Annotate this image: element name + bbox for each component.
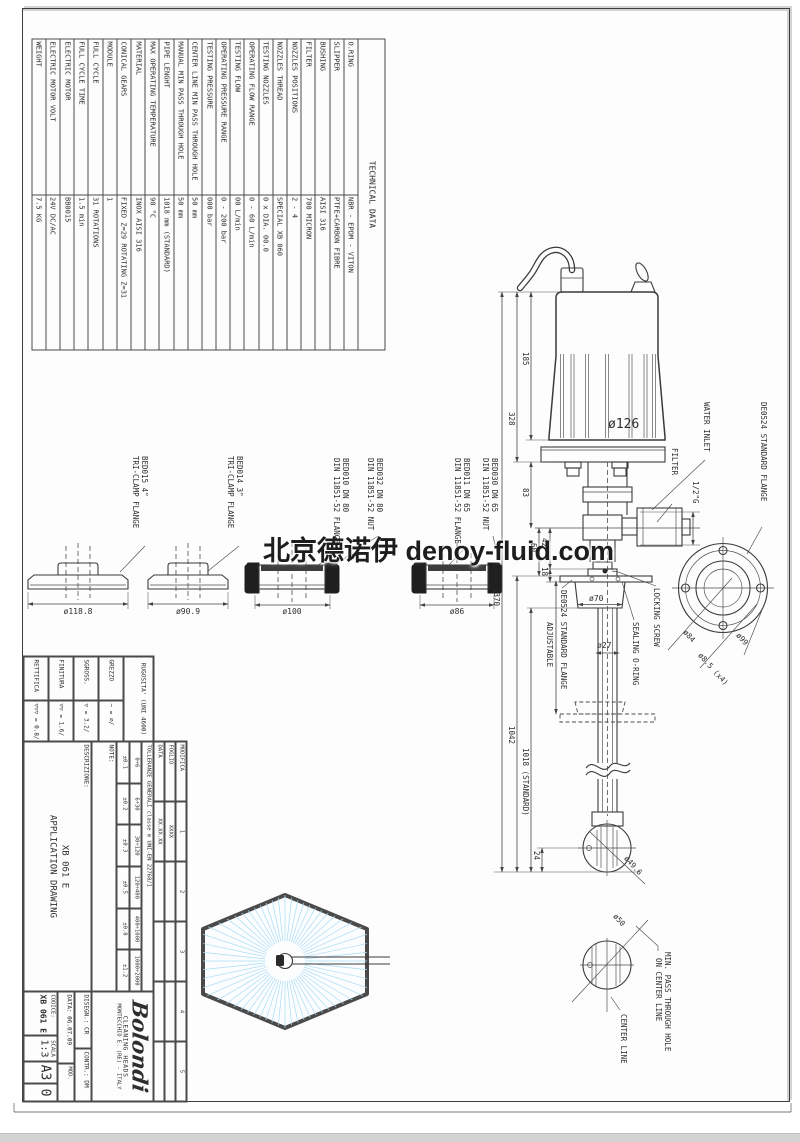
tech-row-value: 90 °C: [145, 194, 159, 350]
roughness-row: RETTIFICA▽▽▽ = 0.8/: [23, 656, 48, 741]
tech-table-row: FULL CYCLE31 ROTATIONS: [88, 39, 102, 350]
tech-row-value: 7.5 KG: [31, 194, 45, 350]
tech-table-row: FILTER700 MICRON: [301, 39, 315, 350]
modifica-cell: XX.XX.XX: [153, 801, 164, 861]
triclamp-flange-3in-view: [148, 543, 239, 609]
triclamp-3in-diameter: ø90.9: [168, 607, 208, 616]
tech-row-label: FULL CYCLE: [88, 39, 102, 195]
technical-data-table: TECHNICAL DATA O.RINGNBR - EPDM - VITONS…: [31, 38, 385, 350]
dim-dia126: ø126: [608, 418, 639, 432]
dim-83: 83: [521, 488, 530, 497]
dim-1018-standard: 1018 (STANDARD): [521, 748, 530, 816]
tech-table-row: SLIPPERPTFE+CARBON FIBRE: [329, 39, 343, 350]
tech-row-label: ELECTRIC MOTOR VOLT: [45, 39, 59, 195]
modifica-cell: [153, 921, 164, 981]
tech-row-label: ELECTRIC MOTOR: [60, 39, 74, 195]
tolerance-cell: ±0.3: [116, 824, 129, 866]
modifica-cell: [153, 981, 164, 1041]
mod-value: 0: [23, 1083, 57, 1101]
tech-row-label: SLIPPER: [329, 39, 343, 195]
contr-field: CONTR.: DM: [74, 1048, 91, 1101]
tech-row-value: NBR - EPDM - VITON: [343, 194, 357, 350]
tech-row-label: FILTER: [301, 39, 315, 195]
tech-table-row: ELECTRIC MOTOR VOLT24V DC/AC: [45, 39, 59, 350]
tech-row-value: 00 L/min: [230, 194, 244, 350]
roughness-symbol: ~ = ∅/: [98, 700, 123, 741]
water-inlet-label: WATER INLET: [702, 402, 711, 452]
triclamp-flange-4in-view: [28, 543, 145, 609]
dim-1370: 1370: [492, 588, 501, 606]
modifica-cell: 2: [175, 861, 186, 921]
tech-table-row: WEIGHT7.5 KG: [31, 39, 45, 350]
scala-field: SCALA 1:3: [23, 1035, 57, 1061]
roughness-block: RUGOSITA' (UNI 4600) GREZZO~ = ∅/SGROSS.…: [22, 655, 154, 742]
tech-row-value: 1.5 min: [74, 194, 88, 350]
modifica-cell: DATA: [153, 741, 164, 801]
dim-18: 18: [540, 567, 549, 576]
tech-row-label: NOZZLES POSITIONS: [287, 39, 301, 195]
modifica-cell: [153, 861, 164, 921]
modifica-row: MODIFICA12345: [175, 741, 186, 1101]
tech-row-label: FULL CYCLE TIME: [74, 39, 88, 195]
tolerance-cell: ±0.5: [116, 866, 129, 908]
din-dn65-diameter: ø86: [437, 607, 477, 616]
tolerance-cell: 1000÷2000: [129, 949, 141, 991]
roughness-header: RUGOSITA' (UNI 4600): [123, 656, 153, 741]
roughness-symbol: ▽ = 3.2/: [73, 700, 98, 741]
tech-row-value: 0 - 60 L/min: [244, 194, 258, 350]
tolerance-cell: ±0.1: [116, 741, 129, 783]
modifica-cell: MODIFICA: [175, 741, 186, 801]
adjustable-label: ADJUSTABLE: [545, 622, 554, 667]
note-field: NOTE:: [91, 741, 116, 991]
tech-row-label: PIPE LENGHT: [159, 39, 173, 195]
watermark-text: 北京德诺伊 denoy-fluid.com: [263, 529, 614, 568]
bottom-bar: [0, 1133, 800, 1142]
codice-value: XB 061 E: [39, 994, 46, 1032]
codice-label: CODICE:: [49, 994, 55, 1032]
roughness-label: FINITURA: [48, 656, 73, 700]
min-pass-label-line2: ON CENTER LINE: [654, 958, 663, 1021]
dim-dia70: ø70: [589, 594, 603, 603]
tech-row-label: MANUAL MIN PASS THROUGH HOLE: [173, 39, 187, 195]
tech-table-row: O.RINGNBR - EPDM - VITON: [343, 39, 357, 350]
modifica-row: FOGLIOXXXX: [164, 741, 175, 1101]
tolerance-cell: 6÷30: [129, 783, 141, 825]
modifica-row: DATAXX.XX.XX: [153, 741, 164, 1101]
tech-row-value: 50 mm: [187, 194, 201, 350]
tech-table-row: PIPE LENGHT1018 mm (STANDARD): [159, 39, 173, 350]
tech-row-label: TESTING PRESSURE: [201, 39, 215, 195]
tech-table-row: OPERATING PRESSURE RANGE0 - 200 bar: [216, 39, 230, 350]
tech-table-row: CONICAL GEARSFIXED Z=29 ROTATING Z=31: [116, 39, 130, 350]
tech-row-value: 2 - 4: [287, 194, 301, 350]
dim-185: 185: [521, 352, 530, 366]
tech-row-value: FIXED Z=29 ROTATING Z=31: [116, 194, 130, 350]
roughness-symbol: ▽▽ = 1.6/: [48, 700, 73, 741]
dim-42: 42: [540, 538, 549, 547]
tech-row-value: 50 mm: [173, 194, 187, 350]
tech-row-label: O.RING: [343, 39, 357, 195]
tech-row-label: MATERIAL: [131, 39, 145, 195]
tech-row-label: MODULE: [102, 39, 116, 195]
din-dn65-nut-code-label: BED030 DN 65: [490, 458, 499, 512]
tech-table-row: TESTING FLOW00 L/min: [230, 39, 244, 350]
tech-row-value: 1: [102, 194, 116, 350]
company-box: Bolondi CLEANING HEADS MONTECCHIO E. (RE…: [91, 991, 153, 1101]
modifica-cell: [164, 1041, 175, 1101]
tech-table-row: BUSHINGAISI 316: [315, 39, 329, 350]
tech-row-label: WEIGHT: [31, 39, 45, 195]
descrizione-title: APPLICATION DRAWING: [46, 744, 58, 988]
sheet-shadow: [14, 1103, 791, 1112]
triclamp-4in-diameter: ø118.8: [58, 607, 98, 616]
tech-row-value: INOX AISI 316: [131, 194, 145, 350]
dim-inlet-thread: 1/2"G: [691, 481, 700, 504]
tech-table-row: CENTER LINE MIN PASS THROUGH HOLE50 mm: [187, 39, 201, 350]
locking-screw-label: LOCKING SCREW: [652, 588, 661, 647]
tech-row-value: 24V DC/AC: [45, 194, 59, 350]
tech-row-value: 0 - 200 bar: [216, 194, 230, 350]
descrizione-label: DESCRIZIONE:: [82, 744, 89, 787]
modifica-cell: 4: [175, 981, 186, 1041]
roughness-row: GREZZO~ = ∅/: [98, 656, 123, 741]
drawing-sheet: TECHNICAL DATA O.RINGNBR - EPDM - VITONS…: [0, 0, 800, 1142]
modifica-cell: FOGLIO: [164, 741, 175, 801]
tech-table-row: TESTING PRESSURE000 bar: [201, 39, 215, 350]
tolerance-cell: ±0.8: [116, 908, 129, 950]
modifica-cell: 1: [175, 801, 186, 861]
triclamp-4in-code-label: BED015 4": [140, 456, 149, 497]
tech-table-row: MAX OPERATING TEMPERATURE90 °C: [145, 39, 159, 350]
codice-field: CODICE: XB 061 E: [23, 991, 57, 1035]
tech-table-row: MANUAL MIN PASS THROUGH HOLE50 mm: [173, 39, 187, 350]
sealing-oring-label: SEALING O-RING: [631, 622, 640, 685]
filter-label: FILTER: [670, 448, 679, 475]
triclamp-4in-type-label: TRI-CLAMP FLANGE: [131, 456, 140, 528]
tech-row-value: 1018 mm (STANDARD): [159, 194, 173, 350]
tech-table-row: ELECTRIC MOTORBB0015: [60, 39, 74, 350]
spray-pattern: [187, 863, 390, 1059]
roughness-label: GREZZO: [98, 656, 123, 700]
tech-row-value: AISI 316: [315, 194, 329, 350]
tech-row-label: CONICAL GEARS: [116, 39, 130, 195]
modifica-cell: [164, 861, 175, 921]
format-field: A3: [23, 1061, 57, 1083]
tech-row-value: 0 x DIA. 00.0: [258, 194, 272, 350]
tech-table-row: OPERATING FLOW RANGE0 - 60 L/min: [244, 39, 258, 350]
tech-row-label: BUSHING: [315, 39, 329, 195]
disegn-field: DISEGN.: CR: [74, 991, 91, 1048]
modifica-cell: [164, 921, 175, 981]
standard-flange-label-left: DE0524 STANDARD FLANGE: [559, 590, 568, 689]
company-logo: Bolondi: [128, 992, 150, 1099]
tech-table-row: FULL CYCLE TIME1.5 min: [74, 39, 88, 350]
title-block: MODIFICA12345FOGLIOXXXXDATAXX.XX.XX TOLL…: [22, 740, 187, 1102]
company-address: MONTECCHIO E. (RE) - ITALY: [115, 994, 121, 1098]
tech-row-label: OPERATING PRESSURE RANGE: [216, 39, 230, 195]
tech-row-value: SPECIAL XB 060: [272, 194, 286, 350]
tech-row-value: PTFE+CARBON FIBRE: [329, 194, 343, 350]
tolerances-header: TOLLERANZE GENERALI classe m UNI-EN 2276…: [141, 741, 153, 991]
tolerance-cell: 30÷120: [129, 824, 141, 866]
tech-row-label: MAX OPERATING TEMPERATURE: [145, 39, 159, 195]
dim-328: 328: [507, 412, 516, 426]
dim-60: 60: [529, 543, 538, 552]
tech-row-value: 700 MICRON: [301, 194, 315, 350]
triclamp-3in-code-label: BED014 3": [235, 456, 244, 497]
tech-row-value: 000 bar: [201, 194, 215, 350]
dim-1042: 1042: [507, 726, 516, 744]
roughness-label: RETTIFICA: [23, 656, 48, 700]
descrizione-field: DESCRIZIONE: XB 061 E APPLICATION DRAWIN…: [23, 741, 91, 991]
tech-row-label: CENTER LINE MIN PASS THROUGH HOLE: [187, 39, 201, 195]
din-dn65-flange-type-label: DIN 11851-52 FLANGE: [453, 458, 462, 544]
mod-label: MOD.: [57, 1063, 74, 1101]
modifica-cell: 3: [175, 921, 186, 981]
tolerance-cell: 120÷400: [129, 866, 141, 908]
min-pass-label-line1: MIN. PASS THROUGH HOLE: [663, 952, 672, 1051]
tolerance-cell: ±0.2: [116, 783, 129, 825]
tech-table-row: TESTING NOZZLES0 x DIA. 00.0: [258, 39, 272, 350]
scala-label: SCALA: [49, 1038, 55, 1058]
modifica-cell: [153, 1041, 164, 1101]
standard-flange-label-top: DE0524 STANDARD FLANGE: [759, 402, 768, 501]
roughness-row: SGROSS.▽ = 3.2/: [73, 656, 98, 741]
tech-row-label: TESTING FLOW: [230, 39, 244, 195]
tech-table-row: MODULE1: [102, 39, 116, 350]
dim-dia27: ø27: [597, 641, 611, 650]
tech-row-value: 31 ROTATIONS: [88, 194, 102, 350]
tech-row-label: TESTING NOZZLES: [258, 39, 272, 195]
technical-data-table-block: TECHNICAL DATA O.RINGNBR - EPDM - VITONS…: [40, 38, 385, 350]
tech-table-row: MATERIALINOX AISI 316: [131, 39, 145, 350]
center-line-label: CENTER LINE: [619, 1014, 628, 1064]
standard-flange-top-view: [668, 527, 774, 668]
modifica-cell: [164, 981, 175, 1041]
tolerance-cell: 400÷1000: [129, 908, 141, 950]
din-dn65-nut-type-label: DIN 11851-52 NUT: [481, 458, 490, 530]
din-dn80-flange-type-label: DIN 11851-52 FLANGE: [332, 458, 341, 544]
din-dn80-nut-code-label: BED032 DN 80: [375, 458, 384, 512]
modifica-cell: 5: [175, 1041, 186, 1101]
tech-table-row: NOZZLES THREADSPECIAL XB 060: [272, 39, 286, 350]
triclamp-3in-type-label: TRI-CLAMP FLANGE: [226, 456, 235, 528]
scala-value: 1:3: [40, 1038, 47, 1058]
din-dn80-flange-code-label: BED010 DN 80: [341, 458, 350, 512]
tech-row-label: OPERATING FLOW RANGE: [244, 39, 258, 195]
din-dn80-nut-type-label: DIN 11851-52 NUT: [366, 458, 375, 530]
min-pass-detail-view: [572, 920, 658, 1012]
descrizione-code: XB 061 E: [58, 744, 70, 988]
din-dn80-diameter: ø100: [272, 607, 312, 616]
roughness-label: SGROSS.: [73, 656, 98, 700]
date-field: DATA: 06.07.09: [57, 991, 74, 1063]
modifica-cell: XXXX: [164, 801, 175, 861]
tolerance-cell: 0÷6: [129, 741, 141, 783]
roughness-row: FINITURA▽▽ = 1.6/: [48, 656, 73, 741]
din-dn65-flange-code-label: BED011 DN 65: [462, 458, 471, 512]
tech-row-label: NOZZLES THREAD: [272, 39, 286, 195]
technical-data-title: TECHNICAL DATA: [358, 39, 385, 350]
dim-24: 24: [532, 851, 541, 860]
roughness-symbol: ▽▽▽ = 0.8/: [23, 700, 48, 741]
tech-table-row: NOZZLES POSITIONS2 - 4: [287, 39, 301, 350]
tech-row-value: BB0015: [60, 194, 74, 350]
tolerance-cell: ±1.2: [116, 949, 129, 991]
